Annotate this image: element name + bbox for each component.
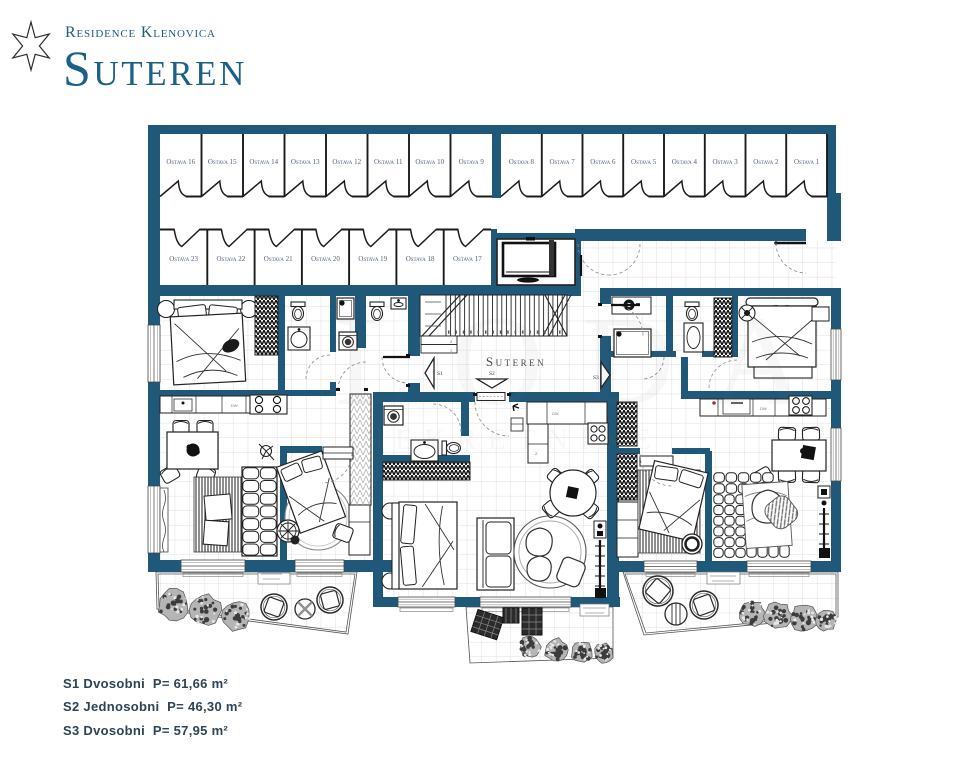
svg-text:Ostava 20: Ostava 20: [311, 255, 340, 263]
svg-text:Ostava 11: Ostava 11: [374, 158, 403, 166]
svg-text:Ostava 12: Ostava 12: [332, 158, 361, 166]
svg-text:Ostava 3: Ostava 3: [712, 158, 738, 166]
svg-text:Ostava 21: Ostava 21: [264, 255, 293, 263]
svg-text:Suteren: Suteren: [63, 40, 247, 96]
svg-text:S3 Dvosobni P= 57,95 m²: S3 Dvosobni P= 57,95 m²: [63, 723, 228, 738]
svg-text:Ostava 16: Ostava 16: [166, 158, 195, 166]
svg-text:Ostava 19: Ostava 19: [358, 255, 387, 263]
svg-text:LODA: LODA: [335, 290, 843, 432]
svg-text:Ostava 13: Ostava 13: [291, 158, 320, 166]
svg-text:Ostava 17: Ostava 17: [453, 255, 482, 263]
svg-text:Ostava 18: Ostava 18: [406, 255, 435, 263]
svg-text:NEKRETNINE: NEKRETNINE: [362, 423, 662, 456]
svg-text:Ostava 8: Ostava 8: [509, 158, 535, 166]
svg-text:Ostava 4: Ostava 4: [672, 158, 698, 166]
svg-text:Ostava 23: Ostava 23: [169, 255, 198, 263]
svg-text:Ostava 10: Ostava 10: [415, 158, 444, 166]
svg-text:Ostava 14: Ostava 14: [249, 158, 278, 166]
svg-text:Ostava 2: Ostava 2: [753, 158, 779, 166]
svg-text:S1 Dvosobni P= 61,66 m²: S1 Dvosobni P= 61,66 m²: [63, 676, 228, 691]
svg-text:Ostava 7: Ostava 7: [549, 158, 575, 166]
svg-text:Ostava 6: Ostava 6: [590, 158, 616, 166]
svg-text:Ostava 5: Ostava 5: [631, 158, 657, 166]
svg-text:Ostava 9: Ostava 9: [459, 158, 485, 166]
svg-text:Ostava 1: Ostava 1: [794, 158, 820, 166]
svg-text:S2 Jednosobni P= 46,30 m²: S2 Jednosobni P= 46,30 m²: [63, 699, 243, 714]
svg-text:Ostava 15: Ostava 15: [208, 158, 237, 166]
svg-text:Residence Klenovica: Residence Klenovica: [65, 24, 216, 41]
svg-text:Ostava 22: Ostava 22: [217, 255, 246, 263]
svg-text:DW: DW: [231, 403, 238, 408]
